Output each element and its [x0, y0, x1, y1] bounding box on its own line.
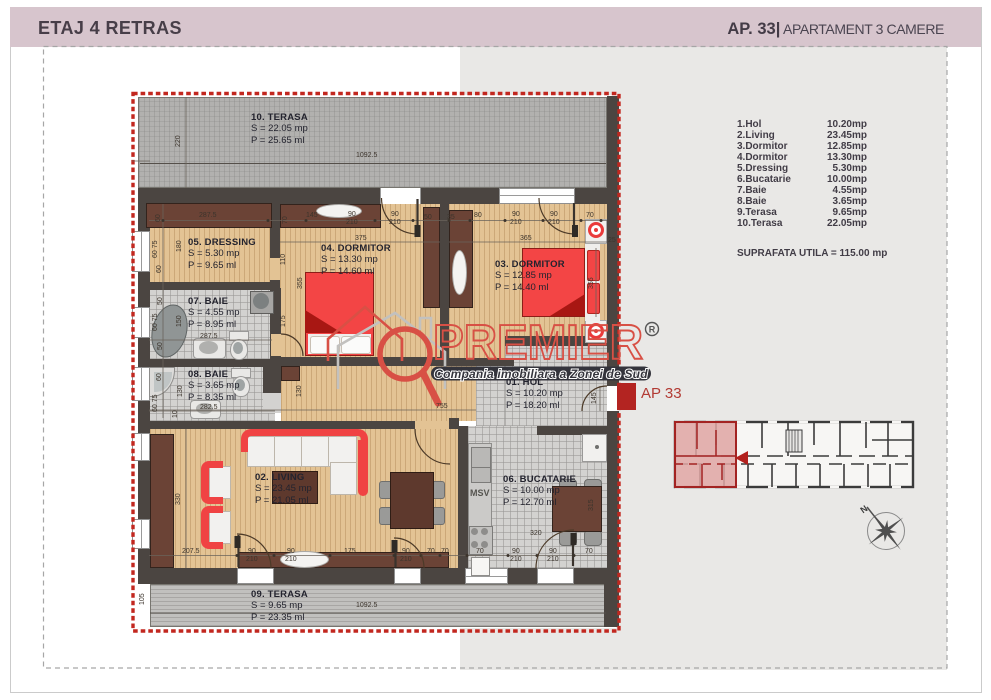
svg-text:R: R	[649, 325, 656, 335]
svg-text:PREMIER: PREMIER	[433, 316, 643, 370]
